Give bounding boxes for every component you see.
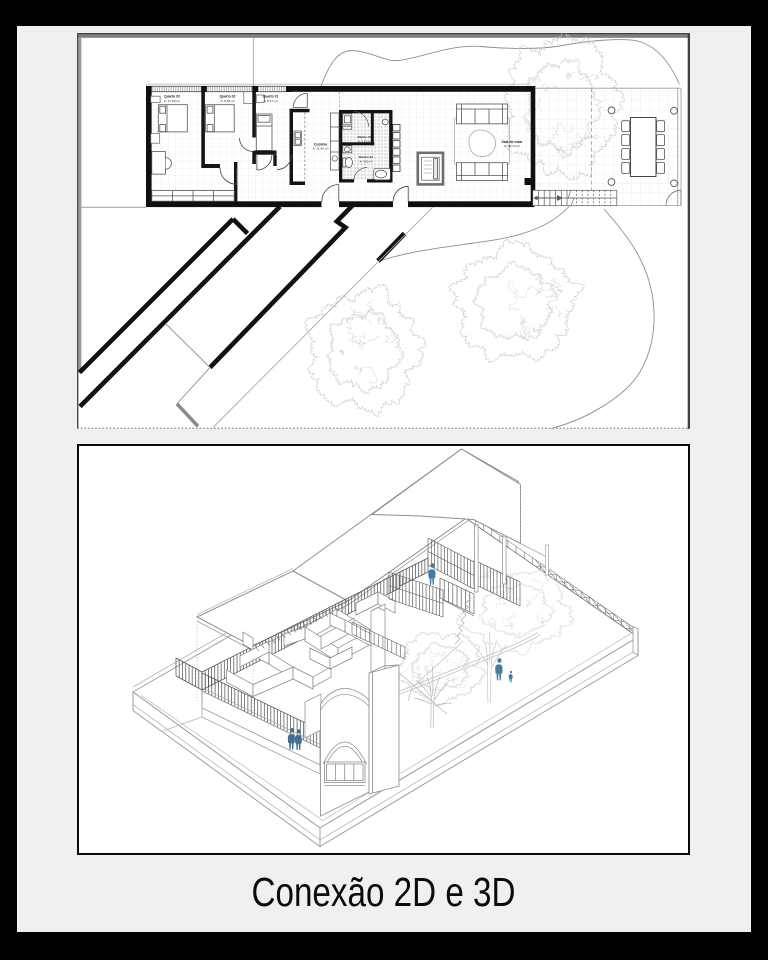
svg-text:A: 17,50 m²: A: 17,50 m² bbox=[164, 99, 180, 103]
svg-text:A: 38,70 m²: A: 38,70 m² bbox=[504, 144, 520, 148]
svg-text:A: 11,40 m²: A: 11,40 m² bbox=[313, 147, 329, 151]
svg-text:A: 4,62 m²: A: 4,62 m² bbox=[360, 160, 373, 164]
svg-text:A: 8,59 m²: A: 8,59 m² bbox=[220, 99, 234, 103]
svg-text:A: 8,17 m²: A: 8,17 m² bbox=[263, 99, 277, 103]
svg-text:A: 3,15 m²: A: 3,15 m² bbox=[358, 139, 371, 143]
